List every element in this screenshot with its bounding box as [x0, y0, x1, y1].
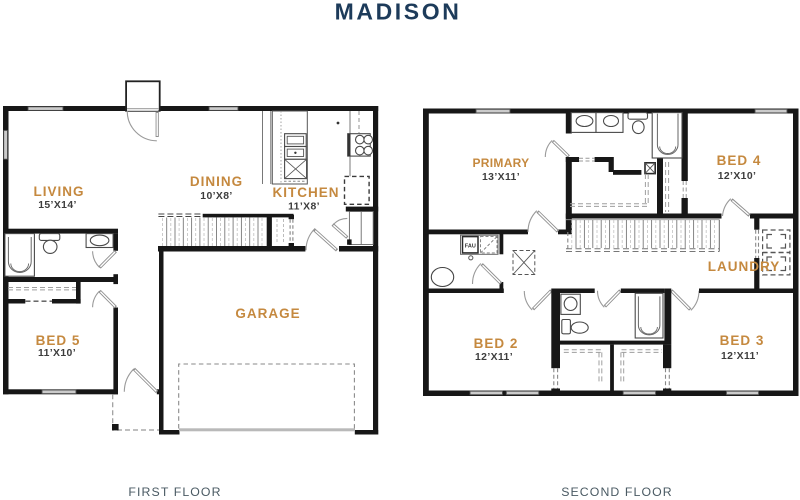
svg-text:LAUNDRY: LAUNDRY — [708, 259, 781, 274]
svg-text:BED 4: BED 4 — [717, 153, 762, 168]
svg-text:11’X8’: 11’X8’ — [288, 202, 320, 213]
svg-text:11’X10’: 11’X10’ — [38, 348, 76, 359]
svg-text:12’X11’: 12’X11’ — [475, 352, 513, 363]
svg-text:SECOND FLOOR: SECOND FLOOR — [561, 485, 673, 499]
svg-text:13’X11’: 13’X11’ — [482, 172, 520, 183]
svg-text:DINING: DINING — [190, 174, 243, 189]
svg-text:FIRST FLOOR: FIRST FLOOR — [128, 485, 221, 499]
svg-text:12’X11’: 12’X11’ — [721, 351, 759, 362]
svg-text:LIVING: LIVING — [33, 184, 84, 199]
svg-text:KITCHEN: KITCHEN — [273, 185, 340, 200]
svg-text:12’X10’: 12’X10’ — [718, 171, 757, 182]
svg-text:BED 2: BED 2 — [474, 336, 519, 351]
svg-text:BED 5: BED 5 — [36, 333, 81, 348]
svg-text:MADISON: MADISON — [335, 0, 462, 25]
svg-text:FAU: FAU — [465, 244, 476, 250]
svg-text:15’X14’: 15’X14’ — [38, 200, 77, 211]
svg-text:PRIMARY: PRIMARY — [473, 156, 530, 170]
svg-text:BED 3: BED 3 — [720, 333, 765, 348]
svg-text:10’X8’: 10’X8’ — [200, 191, 232, 202]
svg-text:GARAGE: GARAGE — [235, 306, 300, 321]
